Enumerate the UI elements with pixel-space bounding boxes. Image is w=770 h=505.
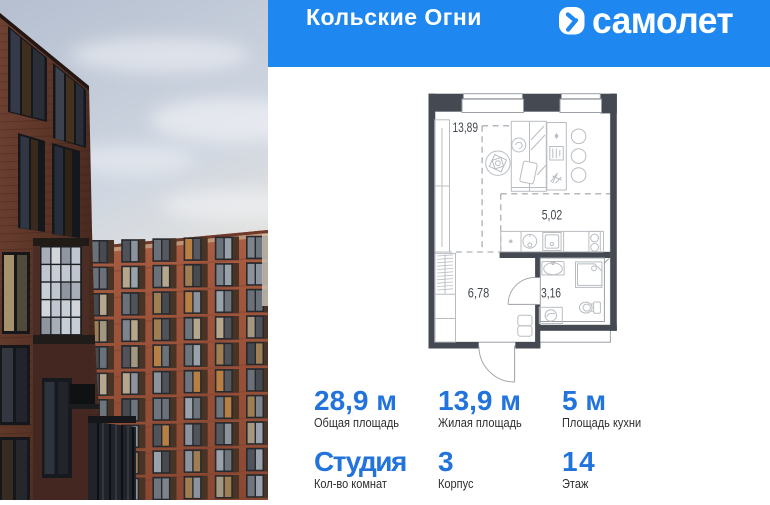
svg-text:13,89: 13,89 (453, 120, 479, 135)
svg-text:5,02: 5,02 (542, 207, 563, 222)
svg-text:3,16: 3,16 (541, 285, 561, 300)
svg-text:6,78: 6,78 (468, 285, 490, 300)
